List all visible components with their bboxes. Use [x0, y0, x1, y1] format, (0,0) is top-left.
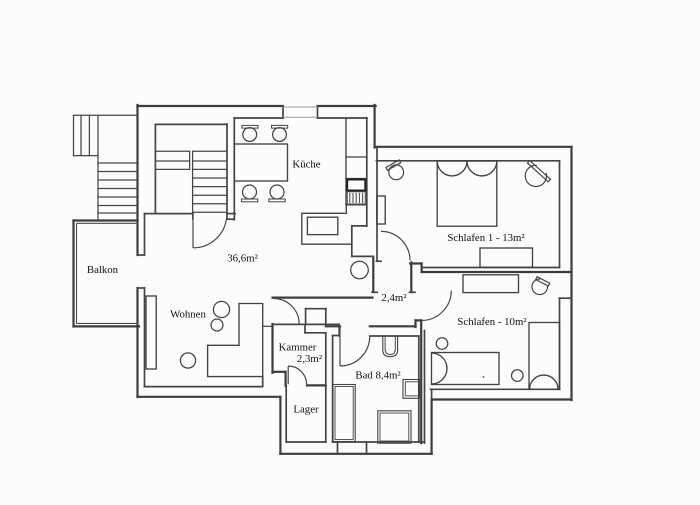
svg-text:2,4m²: 2,4m²: [381, 292, 406, 304]
svg-text:Balkon: Balkon: [87, 264, 119, 276]
svg-text:Kammer: Kammer: [279, 341, 317, 353]
svg-text:Wohnen: Wohnen: [170, 309, 206, 321]
svg-text:Schlafen 1 - 13m²: Schlafen 1 - 13m²: [447, 232, 524, 244]
svg-text:2,3m²: 2,3m²: [297, 353, 322, 365]
svg-text:Lager: Lager: [293, 403, 319, 415]
svg-text:36,6m²: 36,6m²: [227, 252, 258, 264]
svg-text:Küche: Küche: [292, 159, 320, 171]
svg-text:Bad 8,4m²: Bad 8,4m²: [355, 369, 400, 381]
svg-text:Schlafen - 10m²: Schlafen - 10m²: [457, 316, 526, 328]
